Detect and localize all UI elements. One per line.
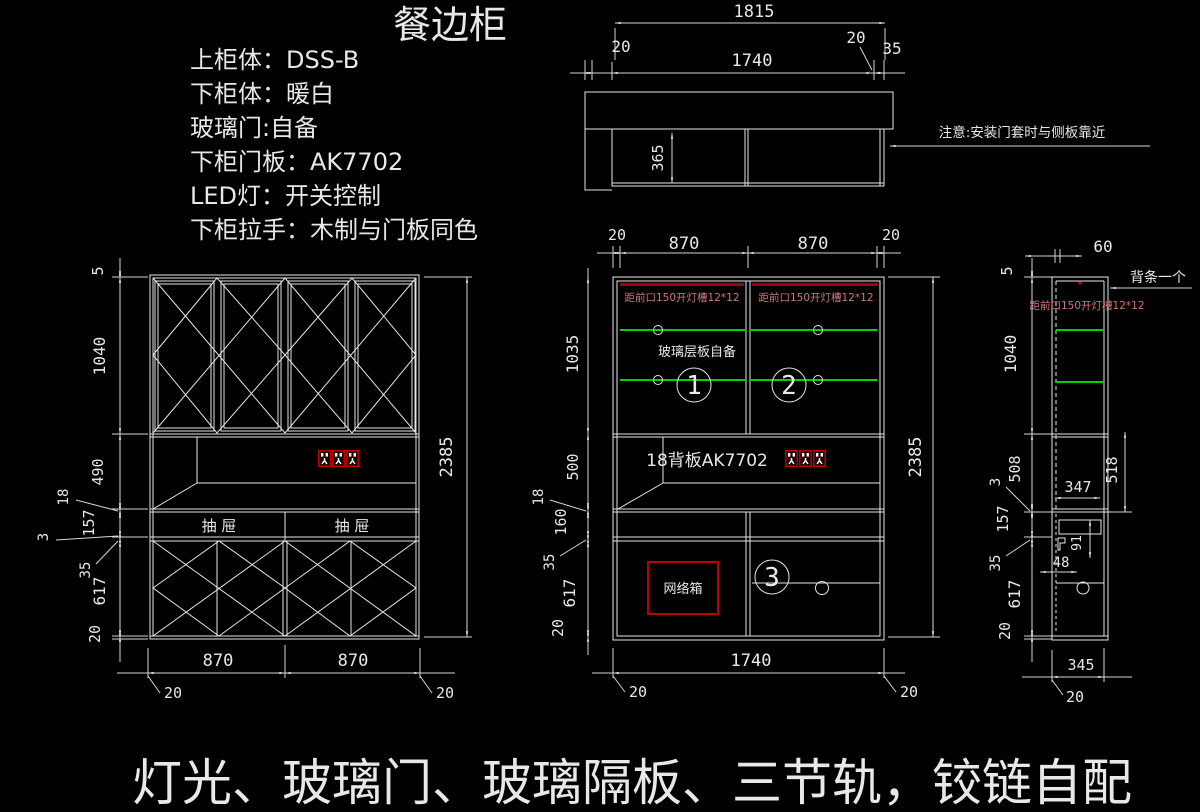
- dim-side-20b: 20: [1066, 688, 1084, 706]
- dim-side-1040: 1040: [1001, 335, 1020, 374]
- label-drawer-right: 抽 屉: [335, 517, 370, 535]
- dim-mid-870b: 870: [798, 234, 829, 254]
- dim-side-345: 345: [1067, 656, 1094, 674]
- dim-side-617: 617: [1005, 580, 1024, 609]
- socket-icon: [319, 451, 331, 467]
- dim-side-3: 3: [988, 478, 1004, 486]
- cad-canvas: 餐边柜 上柜体：DSS-B 下柜体：暖白 玻璃门:自备 下柜门板：AK7702 …: [0, 0, 1200, 812]
- dim-mid-20-right: 20: [882, 226, 900, 244]
- dim-front-20: 20: [86, 625, 104, 643]
- dim-top-20-right: 20: [846, 28, 865, 47]
- dim-front-490: 490: [89, 458, 107, 485]
- network-box-label: 网络箱: [663, 581, 702, 597]
- dim-top-35: 35: [882, 39, 901, 58]
- page-title: 餐边柜: [393, 3, 507, 47]
- dim-mid-18: 18: [531, 489, 547, 506]
- dim-front-5: 5: [89, 266, 107, 275]
- dim-mid-500: 500: [564, 453, 582, 480]
- spec-line-4: 下柜门板：AK7702: [190, 148, 403, 176]
- dim-front-1040: 1040: [90, 337, 109, 376]
- circle-marker-2-label: 2: [781, 371, 797, 401]
- dim-mid-870a: 870: [669, 234, 700, 254]
- dim-side-91: 91: [1070, 535, 1085, 551]
- spec-line-1: 上柜体：DSS-B: [190, 46, 359, 74]
- dim-side-5: 5: [998, 266, 1016, 275]
- dim-mid-160: 160: [552, 508, 570, 535]
- cad-drawing: 餐边柜 上柜体：DSS-B 下柜体：暖白 玻璃门:自备 下柜门板：AK7702 …: [0, 0, 1200, 812]
- dim-mid-20: 20: [549, 619, 567, 637]
- back-panel-label: 18背板AK7702: [646, 451, 768, 471]
- dim-top-365: 365: [649, 144, 667, 171]
- dim-front-870a: 870: [203, 651, 234, 671]
- spec-line-2: 下柜体：暖白: [190, 80, 334, 108]
- footer-note: 灯光、玻璃门、玻璃隔板、三节轨，铰链自配: [132, 754, 1132, 812]
- dim-side-508: 508: [1006, 455, 1024, 482]
- dim-side-48: 48: [1053, 555, 1070, 571]
- dim-front-35: 35: [78, 562, 94, 579]
- dim-side-60: 60: [1093, 237, 1112, 256]
- socket-icon: [786, 451, 798, 467]
- dim-mid-20-bl: 20: [629, 683, 647, 701]
- dim-front-870b: 870: [338, 651, 369, 671]
- socket-icon: [800, 451, 812, 467]
- dim-front-157: 157: [80, 509, 98, 536]
- dim-top-1815: 1815: [734, 2, 775, 22]
- spec-line-6: 下柜拉手：木制与门板同色: [190, 216, 478, 244]
- spec-line-3: 玻璃门:自备: [190, 114, 318, 142]
- dim-mid-1740: 1740: [731, 651, 772, 671]
- dim-mid-35: 35: [542, 554, 558, 571]
- lamp-slot-bar: [752, 283, 877, 286]
- circle-marker-1-label: 1: [686, 371, 702, 401]
- dim-front-2385: 2385: [437, 437, 457, 478]
- dim-top-20-left: 20: [611, 37, 630, 56]
- dim-front-20-bl: 20: [164, 684, 182, 702]
- back-strip-note: 背条一个: [1130, 269, 1186, 286]
- dim-front-3: 3: [36, 533, 52, 541]
- dim-mid-20-br: 20: [900, 683, 918, 701]
- dim-side-518: 518: [1103, 456, 1121, 483]
- side-lamp-note: 距前口150开灯槽12*12: [1029, 299, 1144, 312]
- circle-marker-3-label: 3: [764, 563, 780, 593]
- dim-top-1740: 1740: [732, 51, 773, 71]
- dim-mid-617: 617: [560, 579, 579, 608]
- socket-icon: [814, 451, 826, 467]
- label-drawer-left: 抽 屉: [202, 517, 237, 535]
- spec-line-5: LED灯：开关控制: [190, 182, 381, 210]
- note-door-frame: 注意:安装门套时与侧板靠近: [939, 124, 1106, 141]
- dim-mid-1035: 1035: [563, 335, 582, 374]
- lamp-note-right: 距前口150开灯槽12*12: [758, 291, 873, 304]
- socket-icon: [333, 451, 345, 467]
- dim-mid-20-left: 20: [608, 226, 626, 244]
- dim-side-157: 157: [994, 505, 1012, 532]
- dim-side-20: 20: [996, 622, 1014, 640]
- dim-front-617: 617: [90, 577, 109, 606]
- dim-front-20-br: 20: [436, 684, 454, 702]
- glass-shelf-note: 玻璃层板自备: [658, 344, 736, 360]
- dim-side-347: 347: [1064, 478, 1091, 496]
- lamp-slot-bar: [620, 283, 744, 286]
- dim-mid-2385: 2385: [906, 437, 926, 478]
- dim-side-35: 35: [988, 555, 1004, 572]
- socket-icon: [347, 451, 359, 467]
- lamp-note-left: 距前口150开灯槽12*12: [624, 291, 739, 304]
- lamp-dot: [1078, 281, 1082, 285]
- dim-front-18: 18: [56, 489, 72, 506]
